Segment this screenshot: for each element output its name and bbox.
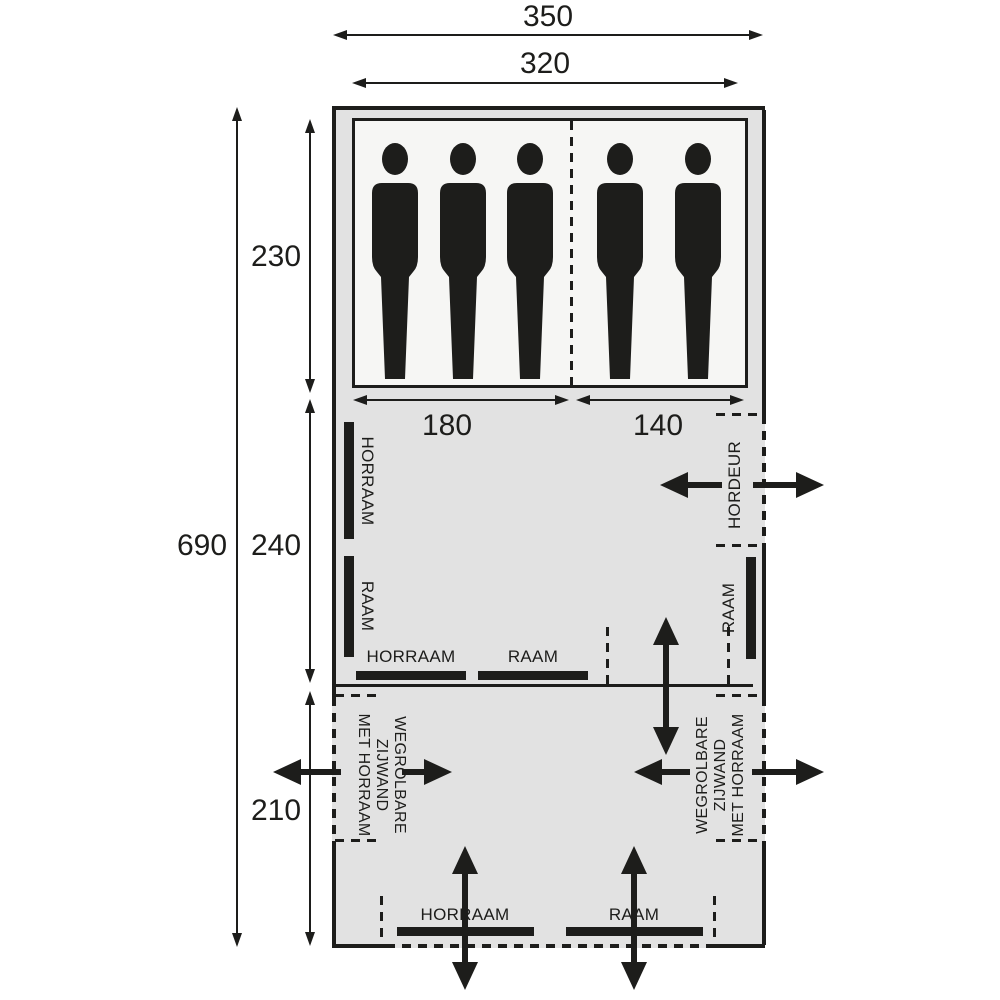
front-horraam-arrow-up-icon: [452, 846, 478, 874]
window-bar-left-horraam: [344, 422, 354, 539]
dim-230-arrowhead-top-icon: [305, 119, 315, 133]
dim-140-arrowhead-right-icon: [730, 395, 744, 405]
rollaway-right-bottom-cap: [716, 839, 762, 842]
dim-690-arrowhead-top-icon: [232, 107, 242, 121]
label-left-raam: RAAM: [357, 581, 377, 631]
dim-230-arrowhead-bottom-icon: [305, 379, 315, 393]
front-horraam-arrow-shaft: [462, 874, 468, 962]
door-inward-arrow-shaft: [688, 482, 722, 488]
dim-bed-left-value: 180: [422, 409, 472, 443]
rollaway-right-line2: ZIJWAND: [712, 713, 730, 836]
front-panel-dashed-right: [713, 896, 716, 944]
door-outward-arrow-icon: [796, 472, 824, 498]
passage-dashed-left: [606, 627, 609, 684]
rollaway-right-top-cap: [716, 694, 762, 697]
dim-230-line: [309, 133, 311, 379]
dim-320-line: [366, 82, 724, 84]
tent-floorplan-diagram: HORRAAM RAAM RAAM HORDEUR HORRAAM RAAM H…: [0, 0, 1000, 1000]
label-mid-raam: RAAM: [508, 647, 558, 667]
dim-690-line: [236, 121, 238, 933]
passage-arrow-down-icon: [653, 727, 679, 755]
front-raam-arrow-down-icon: [621, 962, 647, 990]
window-bar-right-raam: [746, 557, 756, 659]
inner-front-wall: [332, 684, 753, 687]
passage-arrow-up-icon: [653, 617, 679, 645]
dim-690-arrowhead-bottom-icon: [232, 933, 242, 947]
window-bar-mid-horraam: [356, 671, 466, 680]
dim-240-line: [309, 413, 311, 669]
person-silhouette-icon: [670, 143, 726, 379]
sleeping-compartment-left: [355, 121, 570, 385]
dim-sleeping-depth-value: 230: [251, 240, 301, 274]
rollaway-left-line3: MET HORRAAM: [354, 713, 372, 836]
dim-240-arrowhead-bottom-icon: [305, 669, 315, 683]
rollaway-left-out-arrow-shaft: [301, 769, 341, 775]
dim-bed-right-value: 140: [633, 409, 683, 443]
rollaway-left-in-arrow-icon: [424, 759, 452, 785]
person-silhouette-icon: [367, 143, 423, 379]
person-silhouette-icon: [502, 143, 558, 379]
sleeping-compartment-right: [570, 121, 748, 385]
person-silhouette-icon: [435, 143, 491, 379]
label-right-raam: RAAM: [719, 583, 739, 633]
label-hordeur: HORDEUR: [725, 441, 745, 529]
dim-210-arrowhead-bottom-icon: [305, 932, 315, 946]
dim-350-arrowhead-right-icon: [749, 30, 763, 40]
dim-inner-width-value: 320: [520, 47, 570, 81]
door-panel-top-cap: [716, 413, 762, 416]
passage-arrow-shaft: [663, 645, 669, 727]
label-mid-horraam: HORRAAM: [367, 647, 456, 667]
rollaway-right-in-arrow-shaft: [662, 769, 690, 775]
rollaway-left-line1: WEGROLBARE: [390, 713, 408, 836]
dim-180-line: [367, 399, 555, 401]
person-silhouette-icon: [592, 143, 648, 379]
front-panel-dashed-left: [380, 896, 383, 944]
front-horraam-arrow-down-icon: [452, 962, 478, 990]
front-raam-arrow-shaft: [631, 874, 637, 962]
dim-140-line: [590, 399, 730, 401]
dim-140-arrowhead-left-icon: [576, 395, 590, 405]
front-raam-arrow-up-icon: [621, 846, 647, 874]
window-bar-mid-raam: [478, 671, 588, 680]
label-left-horraam: HORRAAM: [357, 437, 377, 526]
dim-210-arrowhead-top-icon: [305, 691, 315, 705]
dim-350-line: [347, 34, 749, 36]
dim-210-line: [309, 705, 311, 932]
wall-left-upper: [332, 110, 336, 697]
rollaway-right-in-arrow-icon: [634, 759, 662, 785]
wall-right-upper: [762, 110, 766, 415]
rollaway-left-in-arrow-shaft: [402, 769, 424, 775]
wall-top: [332, 106, 765, 110]
rollaway-left-top-cap: [335, 694, 382, 697]
rollaway-left-out-arrow-icon: [273, 759, 301, 785]
window-bar-left-raam: [344, 556, 354, 657]
dim-total-depth-value: 690: [177, 529, 227, 563]
rollaway-right-line1: WEGROLBARE: [694, 713, 712, 836]
label-rollaway-left: WEGROLBARE ZIJWAND MET HORRAAM: [354, 713, 408, 836]
door-panel-bottom-cap: [716, 544, 762, 547]
rollaway-right-line3: MET HORRAAM: [730, 713, 748, 836]
rollaway-right-out-arrow-icon: [796, 759, 824, 785]
wall-bottom-right-corner: [714, 944, 765, 948]
dim-350-arrowhead-left-icon: [333, 30, 347, 40]
dim-outer-width-value: 350: [523, 0, 573, 34]
dim-240-arrowhead-top-icon: [305, 399, 315, 413]
rollaway-left-line2: ZIJWAND: [372, 713, 390, 836]
passage-dashed-right: [727, 627, 730, 684]
dim-320-arrowhead-right-icon: [724, 78, 738, 88]
wall-right-door-dashed: [762, 415, 766, 546]
wall-right-lower: [762, 841, 766, 945]
dim-320-arrowhead-left-icon: [352, 78, 366, 88]
door-outward-arrow-shaft: [753, 482, 796, 488]
rollaway-right-out-arrow-shaft: [752, 769, 796, 775]
rollaway-left-bottom-cap: [335, 839, 382, 842]
dim-180-arrowhead-right-icon: [555, 395, 569, 405]
wall-left-lower: [332, 841, 336, 945]
dim-180-arrowhead-left-icon: [353, 395, 367, 405]
wall-bottom-left-corner: [332, 944, 386, 948]
wall-right-mid: [762, 546, 766, 697]
dim-living-depth-value: 240: [251, 529, 301, 563]
label-rollaway-right: WEGROLBARE ZIJWAND MET HORRAAM: [694, 713, 748, 836]
dim-awning-depth-value: 210: [251, 794, 301, 828]
door-inward-arrow-icon: [660, 472, 688, 498]
wall-bottom-dashed: [386, 944, 714, 948]
